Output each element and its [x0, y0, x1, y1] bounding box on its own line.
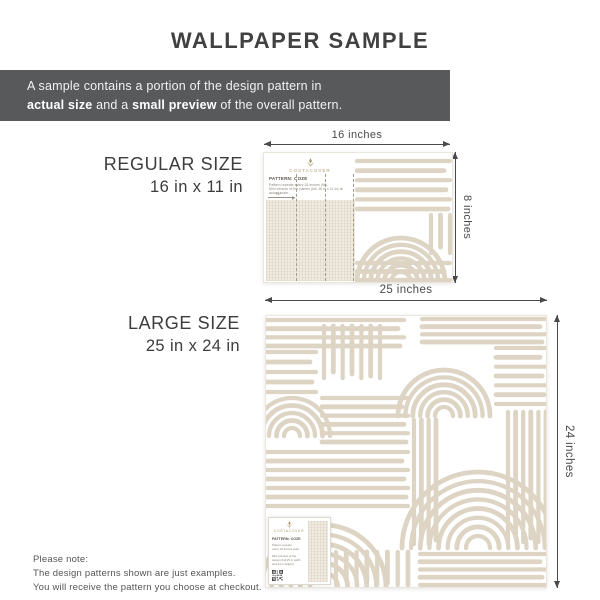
large-info-text: COSTACOVER PATTERN: COZE Pattern repeats…	[272, 521, 306, 582]
large-mini-preview	[308, 521, 328, 582]
regular-scale-bar	[268, 197, 295, 198]
banner-tail-text: of the overall pattern.	[217, 98, 343, 112]
regular-scale-note: 26"	[276, 192, 281, 196]
footer-line-2: The design patterns shown are just examp…	[33, 567, 262, 581]
regular-size-label: REGULAR SIZE 16 in x 11 in	[60, 154, 243, 197]
regular-height-label: 8 inches	[461, 152, 473, 283]
qr-code-icon	[272, 570, 283, 581]
large-pattern-name: PATTERN: COZE	[272, 537, 306, 541]
page-title: WALLPAPER SAMPLE	[0, 28, 600, 54]
brand-emblem-icon	[286, 521, 293, 528]
banner-bold-actual-size: actual size	[27, 98, 92, 112]
regular-pattern-name: PATTERN: COZE	[269, 176, 307, 181]
regular-width-arrow	[264, 144, 450, 145]
description-banner: A sample contains a portion of the desig…	[0, 70, 450, 121]
wallpaper-sample-infographic: WALLPAPER SAMPLE A sample contains a por…	[0, 0, 600, 600]
footer-line-1: Please note:	[33, 553, 262, 567]
footer-line-3: You will receive the pattern you choose …	[33, 581, 262, 595]
footer-note: Please note: The design patterns shown a…	[33, 553, 262, 594]
fold-line	[296, 174, 297, 281]
brand-emblem-icon	[306, 158, 315, 167]
large-size-title: LARGE SIZE	[60, 313, 240, 334]
regular-sample-card: COSTACOVER PATTERN: COZE Pattern repeats…	[263, 152, 453, 283]
banner-line-1: A sample contains a portion of the desig…	[27, 77, 450, 96]
regular-brand-block: COSTACOVER	[264, 158, 356, 173]
regular-pattern-info-2: Mini version of the panels (full 16 in x…	[269, 187, 353, 195]
large-pattern-info-5: and 24 in height).	[272, 563, 306, 567]
regular-pattern-swatch	[355, 153, 452, 282]
large-size-dimensions: 25 in x 24 in	[60, 337, 240, 356]
large-width-arrow	[265, 300, 547, 301]
regular-mini-preview	[266, 200, 355, 281]
fold-line	[325, 174, 326, 281]
banner-line-2: actual size and a small preview of the o…	[27, 96, 450, 115]
large-size-label: LARGE SIZE 25 in x 24 in	[60, 313, 240, 356]
large-height-label: 24 inches	[563, 315, 575, 588]
large-height-arrow	[557, 315, 558, 588]
large-info-card: COSTACOVER PATTERN: COZE Pattern repeats…	[268, 517, 331, 585]
regular-size-title: REGULAR SIZE	[60, 154, 243, 175]
regular-width-label: 16 inches	[264, 129, 450, 141]
large-width-label: 25 inches	[265, 284, 547, 296]
brand-name: COSTACOVER	[272, 529, 306, 533]
banner-bold-small-preview: small preview	[132, 98, 217, 112]
regular-size-dimensions: 16 in x 11 in	[60, 178, 243, 197]
banner-line-1-text: A sample contains a portion of the desig…	[27, 79, 322, 93]
fold-line	[353, 174, 354, 281]
brand-name: COSTACOVER	[264, 168, 356, 173]
regular-height-arrow	[455, 152, 456, 283]
large-sample-card: COSTACOVER PATTERN: COZE Pattern repeats…	[265, 315, 547, 588]
banner-mid-text: and a	[92, 98, 132, 112]
